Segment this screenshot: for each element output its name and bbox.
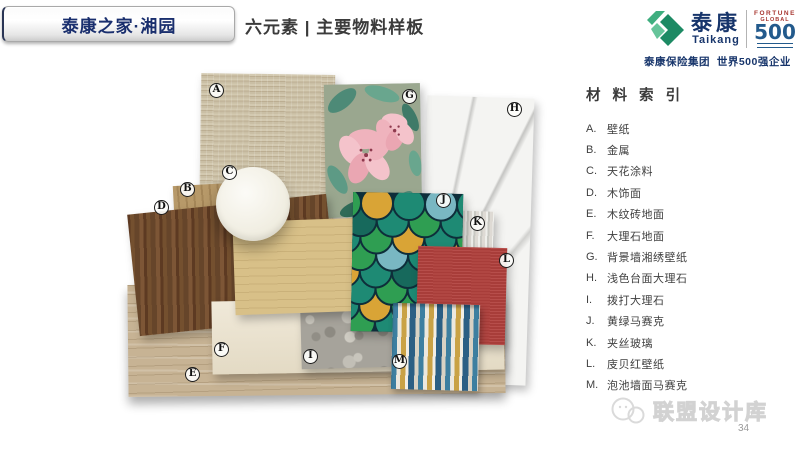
page-title: 六元素 | 主要物料样板 xyxy=(245,13,424,38)
header-banner: 泰康之家·湘园 xyxy=(2,6,235,42)
label-badge-k: K xyxy=(470,216,485,231)
label-badge-i: I xyxy=(303,349,318,364)
project-name: 泰康之家·湘园 xyxy=(62,12,177,37)
taikang-logo: 泰康 Taikang FORTUNE GLOBAL 500 泰康保险集团 世界5… xyxy=(644,8,800,69)
index-item-c: C.天花涂料 xyxy=(586,161,796,182)
index-item-b: B.金属 xyxy=(586,139,796,160)
index-item-a: A.壁纸 xyxy=(586,118,796,139)
index-item-d: D.木饰面 xyxy=(586,182,796,203)
label-badge-h: H xyxy=(507,102,522,117)
label-badge-m: M xyxy=(392,354,407,369)
index-list: A.壁纸 B.金属 C.天花涂料 D.木饰面 E.木纹砖地面 F.大理石地面 G… xyxy=(586,118,796,396)
label-badge-g: G xyxy=(402,89,417,104)
slide: 泰康之家·湘园 六元素 | 主要物料样板 泰康 Taikang FORTUNE … xyxy=(0,0,800,450)
label-badge-c: C xyxy=(222,165,237,180)
label-badge-l: L xyxy=(499,253,514,268)
label-badge-a: A xyxy=(209,83,224,98)
index-item-l: L.庋贝红壁纸 xyxy=(586,353,796,374)
brand-name-cn: 泰康 xyxy=(691,13,741,35)
label-badge-b: B xyxy=(180,182,195,197)
index-title: 材 料 索 引 xyxy=(586,84,796,105)
material-index-panel: 材 料 索 引 A.壁纸 B.金属 C.天花涂料 D.木饰面 E.木纹砖地面 F… xyxy=(586,84,796,396)
index-item-h: H.浅色台面大理石 xyxy=(586,268,796,289)
index-item-k: K.夹丝玻璃 xyxy=(586,332,796,353)
watermark-text: 联盟设计库 xyxy=(653,396,768,426)
label-badge-f: F xyxy=(214,342,229,357)
index-item-g: G.背景墙湘绣壁纸 xyxy=(586,246,796,267)
index-item-e: E.木纹砖地面 xyxy=(586,204,796,225)
wechat-icon xyxy=(610,396,648,426)
logo-divider xyxy=(746,10,747,48)
swatch-m-strip-mosaic xyxy=(391,303,480,391)
taikang-logo-icon xyxy=(644,8,688,50)
label-badge-e: E xyxy=(185,367,200,382)
label-badge-d: D xyxy=(154,200,169,215)
fortune-500-badge: FORTUNE GLOBAL 500 xyxy=(753,10,797,48)
index-item-i: I.拨打大理石 xyxy=(586,289,796,310)
label-badge-j: J xyxy=(436,193,451,208)
index-item-j: J.黄绿马赛克 xyxy=(586,311,796,332)
watermark: 联盟设计库 xyxy=(610,396,768,426)
brand-name-en: Taikang xyxy=(691,35,741,46)
index-item-f: F.大理石地面 xyxy=(586,225,796,246)
logo-tagline: 泰康保险集团 世界500强企业 xyxy=(644,54,800,69)
page-number: 34 xyxy=(738,423,749,434)
index-item-m: M.泡池墙面马赛克 xyxy=(586,375,796,396)
